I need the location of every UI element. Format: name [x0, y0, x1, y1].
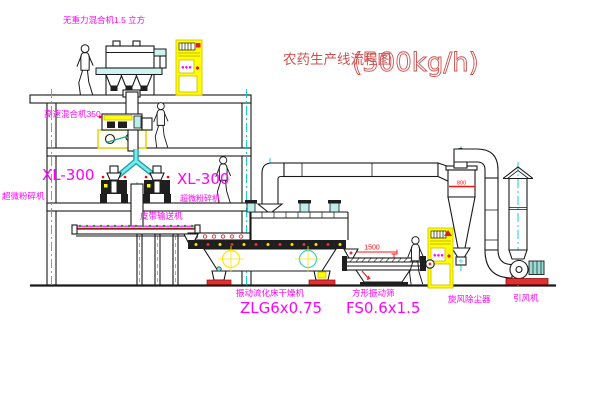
- high-speed-mixer-label: 高速混合机350: [44, 109, 101, 119]
- mixer-discharge-pipe: [126, 92, 138, 115]
- gravity-mixer-label: 无重力混合机1.5 立方: [63, 15, 145, 25]
- belt-conveyor-label: 皮带输送机: [140, 211, 183, 221]
- screen-name: 方形振动筛: [352, 288, 395, 298]
- exhaust-duct: [258, 163, 450, 212]
- cyclone-separator: 800: [446, 149, 512, 279]
- process-flow-drawing: ●●●: [0, 0, 600, 403]
- gravity-mixer: [96, 41, 166, 115]
- worker-second-floor: [154, 103, 168, 148]
- control-cabinet-top: ●●●: [176, 40, 202, 95]
- high-speed-mixer: [98, 114, 152, 151]
- panel-indicator: ●●●: [181, 65, 192, 71]
- control-cabinet-bottom: ●●●: [428, 228, 453, 288]
- pulverizer-left-model: XL-300: [42, 166, 94, 184]
- cyclone-diameter-note: 800: [457, 181, 466, 187]
- alarm-light: [196, 43, 201, 48]
- diagram-title-capacity: (500kg/h): [352, 48, 479, 78]
- induced-draft-fan: [506, 261, 548, 285]
- pulverizer-right-model: XL-300: [177, 170, 229, 188]
- panel-indicator: ●●●: [433, 253, 444, 259]
- dryer-model: ZLG6x0.75: [240, 299, 322, 317]
- dryer-name: 振动流化床干燥机: [236, 288, 305, 298]
- belt-conveyor: [72, 225, 200, 236]
- cyclone-label: 旋风除尘器: [448, 294, 491, 304]
- screen-length-dim: 1500: [364, 245, 380, 252]
- pulverizer-right-name: 超微粉碎机: [180, 193, 220, 203]
- screen-model: FS0.6x1.5: [346, 299, 420, 317]
- pulverizer-left-name: 超微粉碎机: [2, 191, 45, 201]
- fluid-bed-dryer: [184, 200, 348, 285]
- worker-top-floor: [77, 45, 93, 95]
- fan-label: 引风机: [513, 293, 539, 303]
- flow-diagram-canvas: ●●●: [0, 0, 600, 403]
